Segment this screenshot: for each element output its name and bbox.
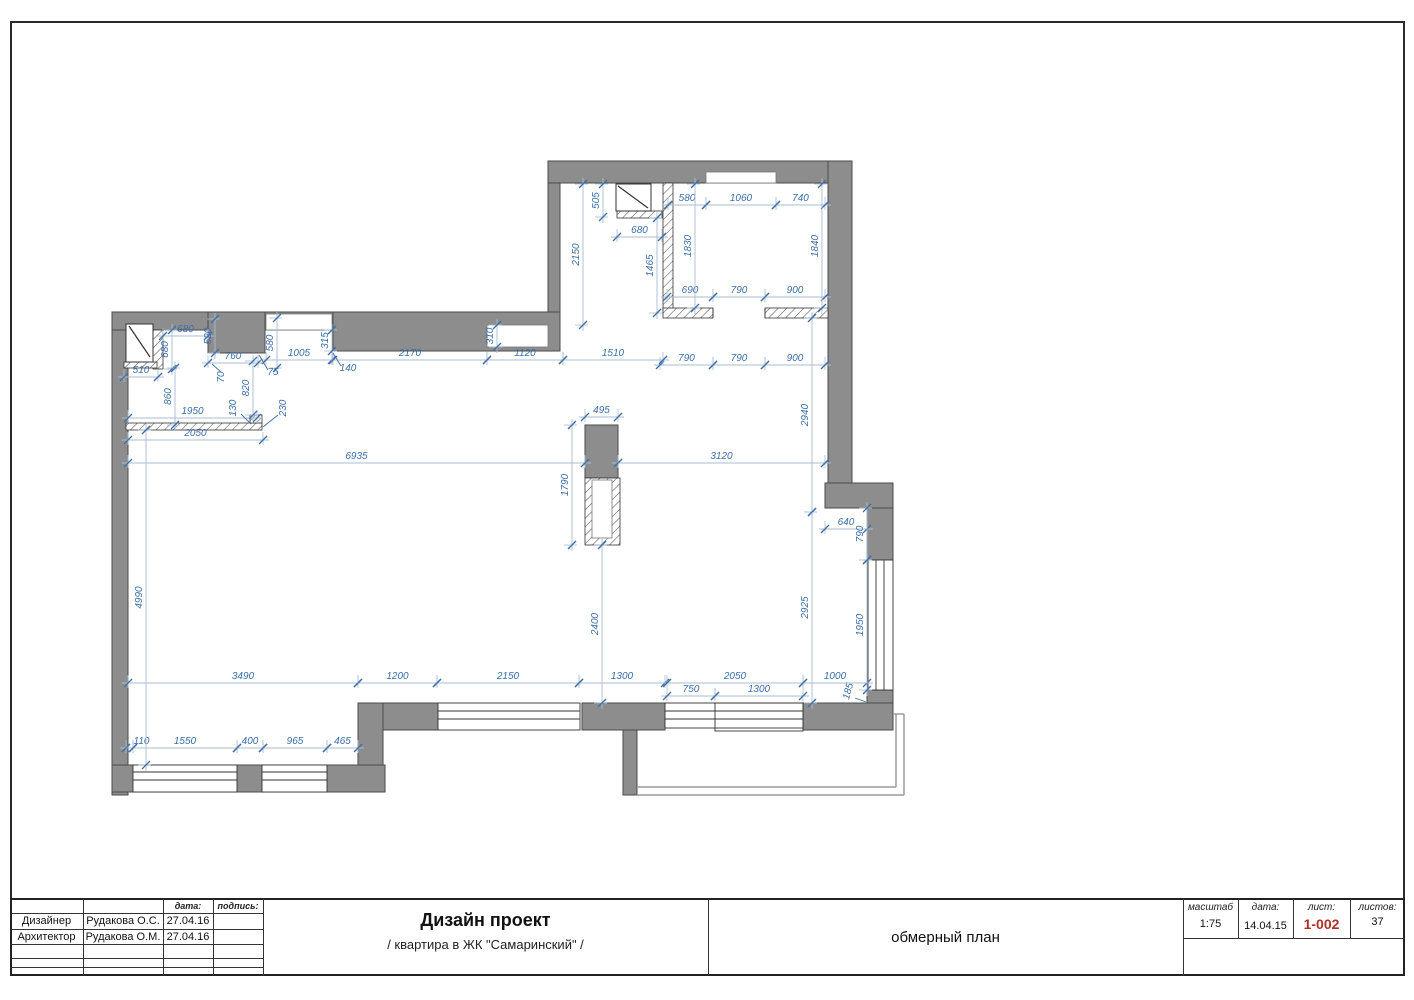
sheet-label: лист: xyxy=(1293,900,1350,914)
window xyxy=(438,703,580,730)
wall-segment xyxy=(867,690,893,703)
wall-niche xyxy=(706,172,776,183)
wall-niche xyxy=(266,314,332,330)
dimension-label: 310 xyxy=(485,327,496,344)
dimension-label: 75 xyxy=(267,367,279,378)
dimension-label: 2940 xyxy=(800,403,811,427)
hatched-walls-layer xyxy=(124,183,828,545)
dimension-label: 70 xyxy=(216,371,227,383)
dimension-label: 1120 xyxy=(514,348,536,359)
date-column-header: дата: xyxy=(163,898,213,913)
dimension-label: 400 xyxy=(242,736,259,747)
wall-niche xyxy=(487,325,548,347)
dimension-label: 140 xyxy=(340,363,357,374)
dimension-label: 1950 xyxy=(181,406,204,417)
dimension-label: 1060 xyxy=(730,193,753,204)
dimension-label: 465 xyxy=(334,736,351,747)
sheet-name: обмерный план xyxy=(708,898,1183,976)
dimension-label: 790 xyxy=(731,353,748,364)
date-label: дата: xyxy=(1238,900,1293,914)
dimension-label: 2050 xyxy=(183,428,207,439)
dimension-label: 3490 xyxy=(232,671,255,682)
dimension-label: 1510 xyxy=(602,348,625,359)
drawing-sheet: 5801060740680690790900790790900680510760… xyxy=(0,0,1414,1000)
dimension-label: 1950 xyxy=(855,613,866,636)
architect-date: 27.04.16 xyxy=(163,929,213,944)
dimension-label: 680 xyxy=(631,225,648,236)
dimension-label: 520 xyxy=(203,327,214,344)
date-value: 14.04.15 xyxy=(1238,918,1293,934)
walls-layer xyxy=(112,161,893,795)
wall-segment xyxy=(867,508,893,560)
scale-value: 1:75 xyxy=(1183,916,1238,932)
title-block-line xyxy=(10,967,263,968)
dimension-label: 580 xyxy=(265,334,276,351)
dimension-label: 760 xyxy=(225,351,242,362)
hatched-wall-segment xyxy=(617,211,662,218)
hatched-wall-segment xyxy=(765,308,828,318)
wall-niche xyxy=(592,480,612,538)
dimension-label: 1200 xyxy=(386,671,409,682)
architect-name: Рудакова О.М. xyxy=(83,929,163,944)
dimension-label: 230 xyxy=(278,399,289,417)
dimension-label: 900 xyxy=(787,353,804,364)
dimension-label: 1830 xyxy=(683,234,694,257)
leader-line xyxy=(263,415,278,427)
dimensions-layer: 5801060740680690790900790790900680510760… xyxy=(118,178,873,771)
wall-segment xyxy=(623,730,637,795)
dimension-label: 1465 xyxy=(645,254,656,277)
wall-segment xyxy=(585,425,618,478)
dimension-label: 315 xyxy=(320,332,331,349)
dimension-label: 680 xyxy=(160,341,171,358)
wall-segment xyxy=(803,703,893,730)
window xyxy=(868,560,893,690)
dimension-label: 2170 xyxy=(398,348,422,359)
dimension-label: 2925 xyxy=(800,596,811,620)
dimension-label: 3120 xyxy=(710,451,733,462)
dimension-label: 820 xyxy=(241,379,252,396)
dimension-label: 1000 xyxy=(824,671,847,682)
floor-plan: 5801060740680690790900790790900680510760… xyxy=(0,0,1414,1000)
dimension-label: 185 xyxy=(841,681,856,700)
dimension-label: 860 xyxy=(163,388,174,405)
sheets-value: 37 xyxy=(1350,914,1405,930)
dimension-label: 2050 xyxy=(723,671,747,682)
dimension-label: 2400 xyxy=(590,612,601,636)
dimension-label: 130 xyxy=(228,399,239,416)
dimension-label: 750 xyxy=(683,684,700,695)
leader-line xyxy=(855,698,866,702)
wall-segment xyxy=(112,312,128,795)
dimension-label: 790 xyxy=(731,285,748,296)
architect-role: Архитектор xyxy=(10,929,83,944)
designer-role: Дизайнер xyxy=(10,913,83,929)
designer-name: Рудакова О.С. xyxy=(83,913,163,929)
dimension-label: 790 xyxy=(855,525,866,542)
title-block-line xyxy=(10,944,263,945)
dimension-label: 900 xyxy=(787,285,804,296)
dimension-label: 510 xyxy=(133,365,150,376)
dimension-label: 1300 xyxy=(611,671,634,682)
title-block-line xyxy=(1183,938,1405,939)
wall-segment xyxy=(828,161,852,483)
wall-segment xyxy=(548,161,560,312)
project-subtitle: / квартира в ЖК "Самаринский" / xyxy=(263,934,708,954)
dimension-label: 4990 xyxy=(134,586,145,609)
window xyxy=(133,765,237,792)
window xyxy=(262,765,327,792)
wall-segment xyxy=(548,161,852,183)
wall-segment xyxy=(582,703,665,730)
dimension-label: 505 xyxy=(591,192,602,209)
dimension-label: 6935 xyxy=(345,451,368,462)
leader-line xyxy=(259,355,268,370)
designer-date: 27.04.16 xyxy=(163,913,213,929)
project-title: Дизайн проект xyxy=(263,908,708,932)
dimension-label: 740 xyxy=(792,193,809,204)
dimension-label: 1005 xyxy=(288,348,311,359)
dimension-label: 580 xyxy=(679,193,696,204)
leader-line xyxy=(212,364,221,372)
dimension-label: 1550 xyxy=(174,736,197,747)
dimension-label: 495 xyxy=(593,405,610,416)
dimension-label: 690 xyxy=(682,285,699,296)
sheet-number: 1-002 xyxy=(1293,915,1350,933)
dimension-label: 640 xyxy=(838,517,855,528)
dimension-label: 1300 xyxy=(748,684,771,695)
scale-label: масштаб xyxy=(1183,900,1238,914)
title-block-line xyxy=(10,958,263,959)
dimension-label: 1790 xyxy=(560,473,571,496)
sheets-label: листов: xyxy=(1350,900,1405,914)
window xyxy=(665,703,803,728)
wall-segment xyxy=(825,483,893,508)
dimension-label: 790 xyxy=(678,353,695,364)
dimension-label: 680 xyxy=(177,324,194,335)
dimension-label: 1840 xyxy=(810,234,821,257)
signature-column-header: подпись: xyxy=(213,898,263,913)
dimension-label: 2150 xyxy=(571,243,582,267)
hatched-wall-segment xyxy=(663,308,713,318)
dimension-label: 2150 xyxy=(496,671,520,682)
dimension-label: 965 xyxy=(287,736,304,747)
